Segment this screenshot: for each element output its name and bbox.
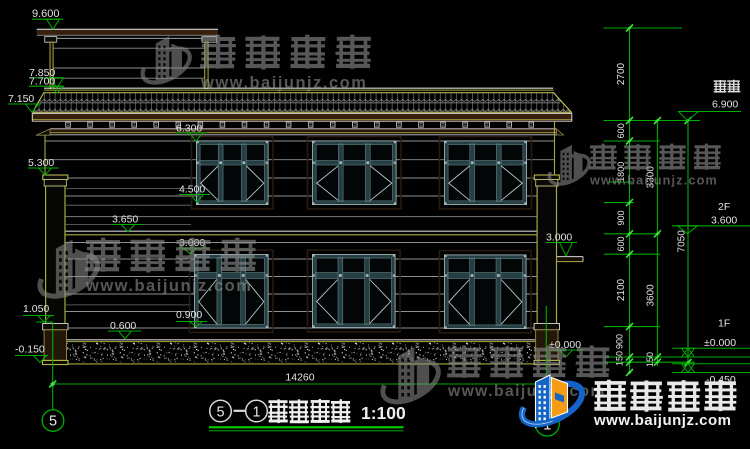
svg-text:0.900: 0.900	[176, 309, 202, 321]
svg-text:2F: 2F	[718, 201, 730, 213]
svg-text:3.600: 3.600	[711, 215, 737, 227]
svg-text:600: 600	[616, 236, 626, 251]
svg-text:2700: 2700	[616, 62, 627, 85]
svg-text:www.baijunjz.com: www.baijunjz.com	[593, 412, 731, 429]
svg-text:150: 150	[615, 351, 625, 366]
svg-text:900: 900	[616, 210, 626, 225]
svg-text:www.baijunjz.com: www.baijunjz.com	[85, 277, 252, 295]
svg-text:4.500: 4.500	[179, 184, 205, 196]
svg-text:6.900: 6.900	[712, 99, 738, 111]
svg-text:9.600: 9.600	[32, 8, 60, 20]
svg-text:14260: 14260	[285, 372, 314, 384]
svg-text:600: 600	[616, 123, 626, 138]
svg-text:0.600: 0.600	[110, 320, 136, 332]
svg-text:900: 900	[615, 334, 625, 349]
svg-text:3.000: 3.000	[546, 232, 572, 244]
svg-text:1F: 1F	[718, 318, 730, 330]
svg-text:3.650: 3.650	[112, 214, 138, 226]
svg-text:www.baijunjz.com: www.baijunjz.com	[589, 174, 718, 188]
svg-text:5: 5	[216, 404, 224, 420]
svg-text:±0.000: ±0.000	[704, 337, 736, 349]
svg-text:5.300: 5.300	[28, 157, 54, 169]
svg-text:7.150: 7.150	[8, 93, 34, 105]
svg-text:1:100: 1:100	[361, 403, 406, 423]
svg-text:-0.150: -0.150	[15, 344, 45, 356]
svg-text:1: 1	[252, 404, 260, 420]
svg-text:1.050: 1.050	[23, 303, 49, 315]
svg-text:www.baijunjz.com: www.baijunjz.com	[200, 74, 367, 92]
svg-text:150: 150	[645, 352, 655, 367]
svg-text:5: 5	[49, 414, 57, 430]
svg-text:2100: 2100	[616, 278, 627, 301]
svg-text:3600: 3600	[646, 284, 657, 307]
